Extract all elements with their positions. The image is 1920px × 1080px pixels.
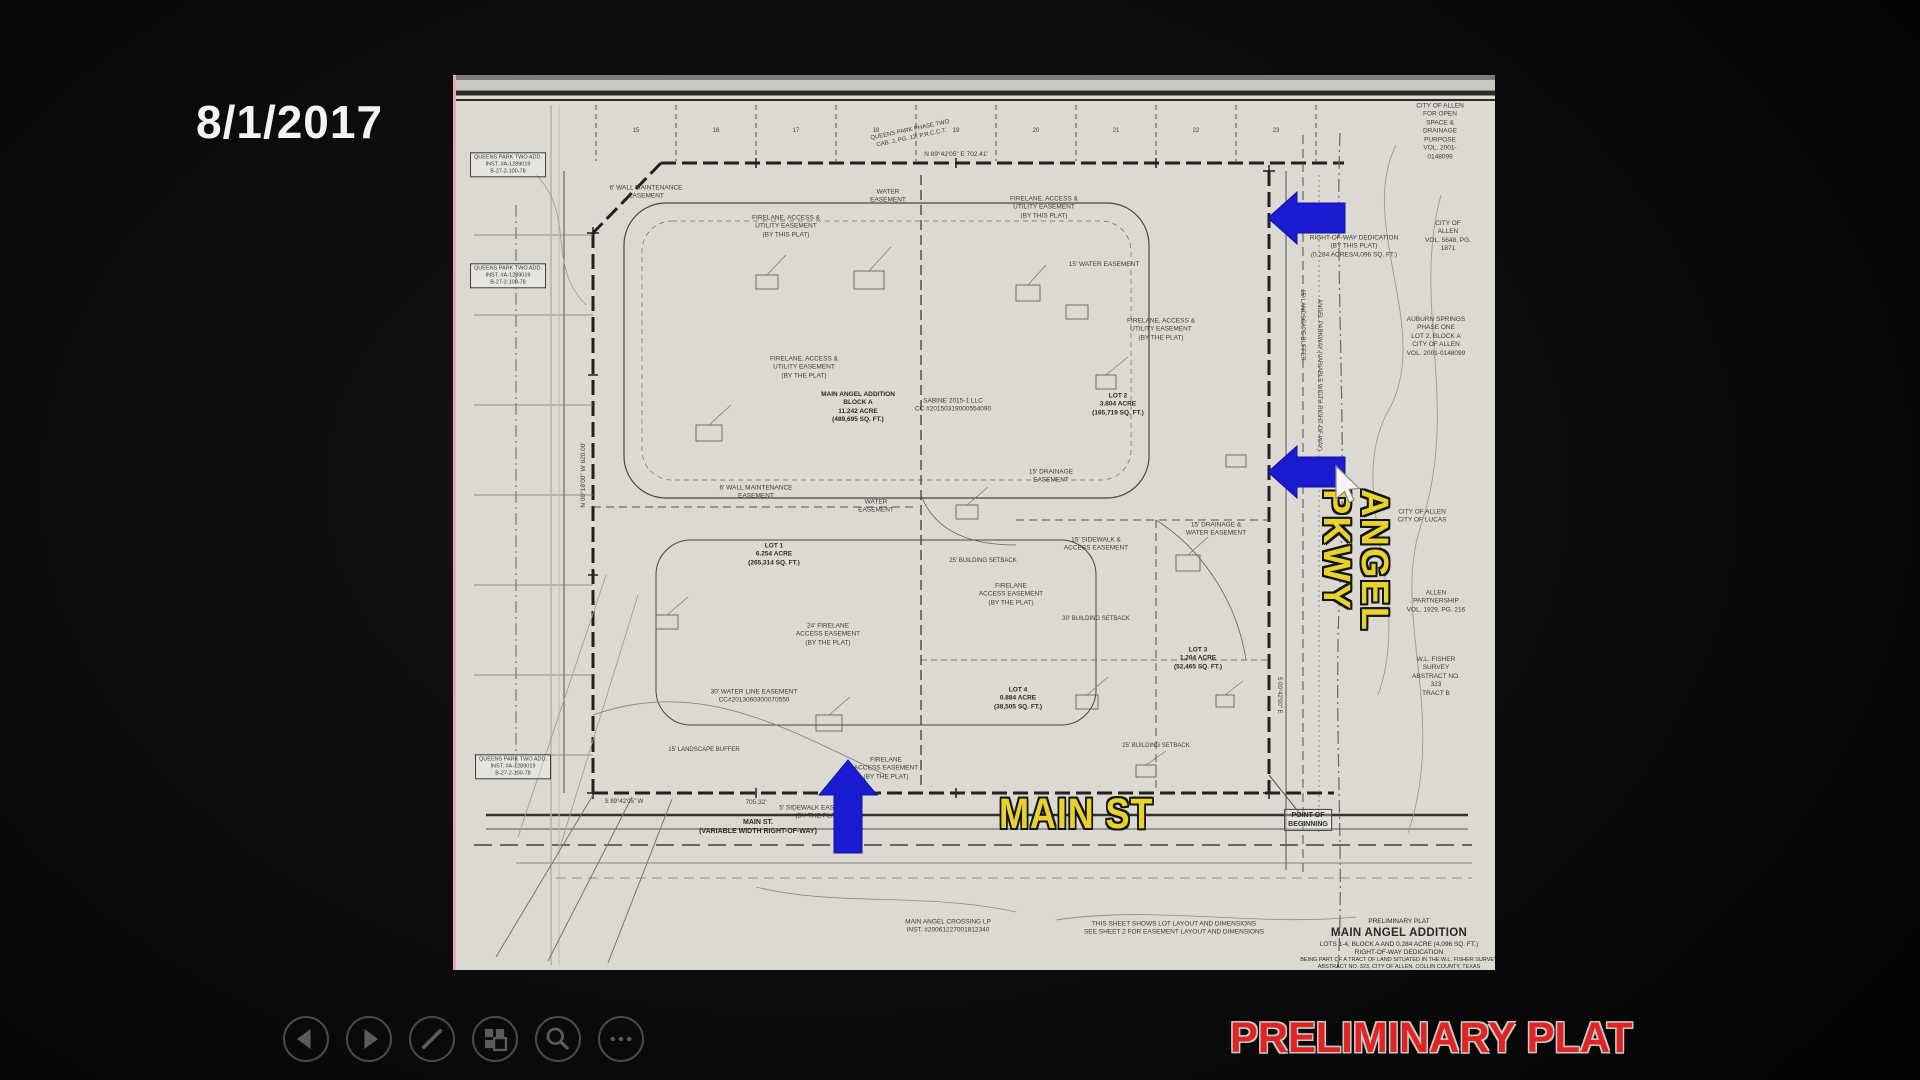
plat-annotation: N 89°42'05" E 702.41' [924, 151, 987, 159]
plat-annotation: 18 [873, 128, 880, 136]
plat-annotation: 5' SIDEWALK EASEMENT (BY THE PLAT) [779, 805, 857, 822]
plat-annotation: 15' DRAINAGE EASEMENT [1029, 469, 1073, 486]
plat-annotation: QUEENS PARK TWO ADD. INST. #A-1289019 B-… [470, 263, 546, 288]
plat-annotation: 6' WALL MAINTENANCE EASEMENT [720, 485, 793, 502]
title-block-line: PRELIMINARY PLAT [1299, 918, 1495, 926]
plat-annotation: SABINE 2015-1 LLC CC #20150319000554090 [915, 398, 991, 415]
ellipsis-icon [600, 1016, 642, 1062]
plat-annotation: 15' SIDEWALK & ACCESS EASEMENT [1064, 537, 1128, 554]
plat-annotation: 16 [713, 128, 720, 136]
more-options-button[interactable] [598, 1016, 644, 1062]
angel-pkwy-label: ANGEL PKWY [1317, 489, 1393, 631]
plat-annotation: CITY OF ALLEN VOL. 5648, PG. 1871 [1425, 220, 1472, 254]
plat-annotation: 19 [953, 128, 960, 136]
plat-annotation: ANGEL PARKWAY (VARIABLE WIDTH RIGHT-OF-W… [1314, 299, 1322, 451]
plat-annotation: 21 [1113, 128, 1120, 136]
see-all-slides-button[interactable] [472, 1016, 518, 1062]
plat-annotation: FIRELANE ACCESS EASEMENT (BY THE PLAT) [979, 582, 1043, 607]
plat-annotation: MAIN ANGEL CROSSING LP INST. #2006122700… [905, 919, 991, 936]
plat-annotation: POINT OF BEGINNING [1284, 809, 1332, 831]
preliminary-plat-watermark: PRELIMINARY PLAT [1230, 1014, 1632, 1063]
main-st-label: MAIN ST [999, 793, 1153, 836]
pen-tools-button[interactable] [409, 1016, 455, 1062]
plat-annotation: 15 [633, 128, 640, 136]
plat-annotation: S 00°42'00" E [1274, 676, 1282, 713]
plat-annotation: 25' BUILDING SETBACK [1122, 743, 1190, 751]
plat-annotation: 705.32' [745, 799, 766, 807]
plat-annotation: W.L. FISHER SURVEY ABSTRACT NO. 323 TRAC… [1407, 656, 1466, 698]
plat-annotation: ALLEN PARTNERSHIP VOL. 1929, PG. 216 [1407, 589, 1466, 614]
plat-sheet: MAIN ANGEL ADDITION BLOCK A 11.242 ACRE … [453, 75, 1495, 970]
magnifier-icon [537, 1016, 579, 1062]
plat-annotation: QUEENS PARK TWO ADD. INST. #A-1289019 B-… [475, 754, 551, 779]
plat-annotation: 6' WALL MAINTENANCE EASEMENT [610, 185, 683, 202]
plat-title: MAIN ANGEL ADDITION [1299, 926, 1495, 940]
left-triangle-icon [285, 1016, 327, 1062]
plat-annotation: AUBURN SPRINGS PHASE ONE LOT 2, BLOCK A … [1407, 316, 1466, 358]
plat-annotation: LOT 4 0.884 ACRE (38,505 SQ. FT.) [994, 686, 1042, 711]
plat-annotation: FIRELANE, ACCESS & UTILITY EASEMENT (BY … [1127, 317, 1195, 342]
plat-annotation: LOT 2 3.804 ACRE (165,719 SQ. FT.) [1092, 392, 1144, 417]
plat-annotation: S 89°42'05" W [605, 799, 644, 807]
plat-annotation: RIGHT-OF-WAY DEDICATION (BY THIS PLAT) (… [1310, 234, 1399, 259]
previous-slide-button[interactable] [283, 1016, 329, 1062]
plat-annotation: FIRELANE ACCESS EASEMENT (BY THE PLAT) [854, 756, 918, 781]
plat-annotation: THIS SHEET SHOWS LOT LAYOUT AND DIMENSIO… [1084, 921, 1264, 938]
pen-icon [411, 1016, 453, 1062]
slide-canvas: 8/1/2017 [0, 0, 1920, 1080]
plat-annotation: 20 [1033, 128, 1040, 136]
plat-annotation: LOT 3 1.204 ACRE (52,465 SQ. FT.) [1174, 646, 1222, 671]
plat-annotation: 15' LANDSCAPE BUFFER [1297, 289, 1305, 361]
title-block-line: ABSTRACT NO. 323, CITY OF ALLEN, COLLIN … [1299, 964, 1495, 970]
slide-date: 8/1/2017 [196, 95, 383, 149]
plat-annotation: 15' WATER EASEMENT [1069, 261, 1140, 269]
next-slide-button[interactable] [346, 1016, 392, 1062]
slides-grid-icon [474, 1016, 516, 1062]
title-block: PRELIMINARY PLAT MAIN ANGEL ADDITION LOT… [1299, 918, 1495, 970]
plat-annotation: 17 [793, 128, 800, 136]
title-block-line: LOTS 1-4, BLOCK A AND 0.284 ACRE (4,096 … [1299, 941, 1495, 949]
plat-annotation: 15' DRAINAGE & WATER EASEMENT [1186, 522, 1246, 539]
right-triangle-icon [348, 1016, 390, 1062]
slideshow-controls [283, 1016, 644, 1062]
plat-annotation: 15' LANDSCAPE BUFFER [668, 747, 740, 755]
plat-annotation: 30' WATER LINE EASEMENT CC#2013060300070… [711, 689, 798, 706]
plat-annotation: N 00°18'00" W 620.00' [580, 442, 588, 507]
plat-annotation: LOT 1 6.254 ACRE (265,314 SQ. FT.) [748, 542, 800, 567]
plat-annotation: WATER EASEMENT [858, 499, 894, 516]
plat-annotation: FIRELANE, ACCESS & UTILITY EASEMENT (BY … [770, 355, 838, 380]
plat-annotation: WATER EASEMENT [870, 189, 906, 206]
zoom-button[interactable] [535, 1016, 581, 1062]
plat-annotation: CITY OF ALLEN FOR OPEN SPACE & DRAINAGE … [1413, 102, 1468, 161]
plat-annotation: 22 [1193, 128, 1200, 136]
plat-annotation: 25' BUILDING SETBACK [949, 558, 1017, 566]
title-block-line: BEING PART OF A TRACT OF LAND SITUATED I… [1299, 957, 1495, 964]
plat-annotation: FIRELANE, ACCESS & UTILITY EASEMENT (BY … [752, 214, 820, 239]
title-block-line: RIGHT-OF-WAY DEDICATION [1299, 949, 1495, 957]
plat-annotation: CITY OF ALLEN CITY OF LUCAS [1397, 509, 1446, 526]
plat-annotation: QUEENS PARK TWO ADD. INST. #A-1289019 B-… [470, 152, 546, 177]
plat-annotation: 24' FIRELANE ACCESS EASEMENT (BY THE PLA… [796, 622, 860, 647]
plat-annotation: 30' BUILDING SETBACK [1062, 616, 1130, 624]
plat-annotation: MAIN ANGEL ADDITION BLOCK A 11.242 ACRE … [821, 391, 895, 425]
plat-annotation: 23 [1273, 128, 1280, 136]
plat-annotation: FIRELANE, ACCESS & UTILITY EASEMENT (BY … [1010, 195, 1078, 220]
